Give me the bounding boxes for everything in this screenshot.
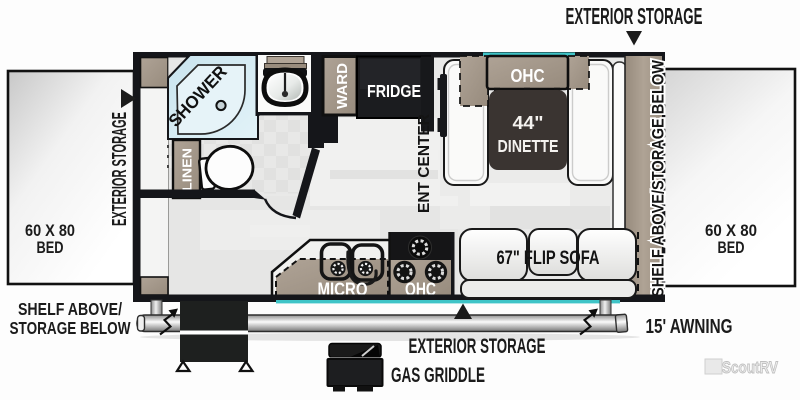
svg-text:EXTERIOR STORAGE: EXTERIOR STORAGE: [109, 112, 131, 226]
svg-text:SHELF ABOVE/: SHELF ABOVE/: [18, 299, 122, 319]
svg-text:15' AWNING: 15' AWNING: [646, 316, 733, 338]
svg-text:STORAGE BELOW: STORAGE BELOW: [10, 318, 131, 338]
svg-text:OHC: OHC: [511, 65, 545, 86]
svg-text:BED: BED: [37, 239, 64, 257]
svg-text:67" FLIP SOFA: 67" FLIP SOFA: [497, 248, 600, 269]
svg-text:SHELF ABOVE/STORAGE BELOW: SHELF ABOVE/STORAGE BELOW: [649, 59, 668, 297]
svg-text:LINEN: LINEN: [181, 148, 195, 191]
svg-text:FRIDGE: FRIDGE: [367, 81, 421, 101]
svg-text:EXTERIOR STORAGE: EXTERIOR STORAGE: [409, 335, 546, 358]
svg-text:ScoutRV: ScoutRV: [722, 358, 779, 377]
svg-text:BED: BED: [718, 239, 745, 257]
svg-text:DINETTE: DINETTE: [498, 136, 559, 156]
svg-text:WARD: WARD: [334, 63, 351, 109]
svg-text:GAS GRIDDLE: GAS GRIDDLE: [391, 363, 485, 387]
svg-text:ENT CENTER: ENT CENTER: [416, 114, 433, 213]
svg-text:44": 44": [513, 112, 544, 133]
svg-text:EXTERIOR STORAGE: EXTERIOR STORAGE: [566, 3, 703, 29]
svg-text:60 X 80: 60 X 80: [25, 222, 75, 240]
svg-text:60 X 80: 60 X 80: [705, 222, 757, 240]
